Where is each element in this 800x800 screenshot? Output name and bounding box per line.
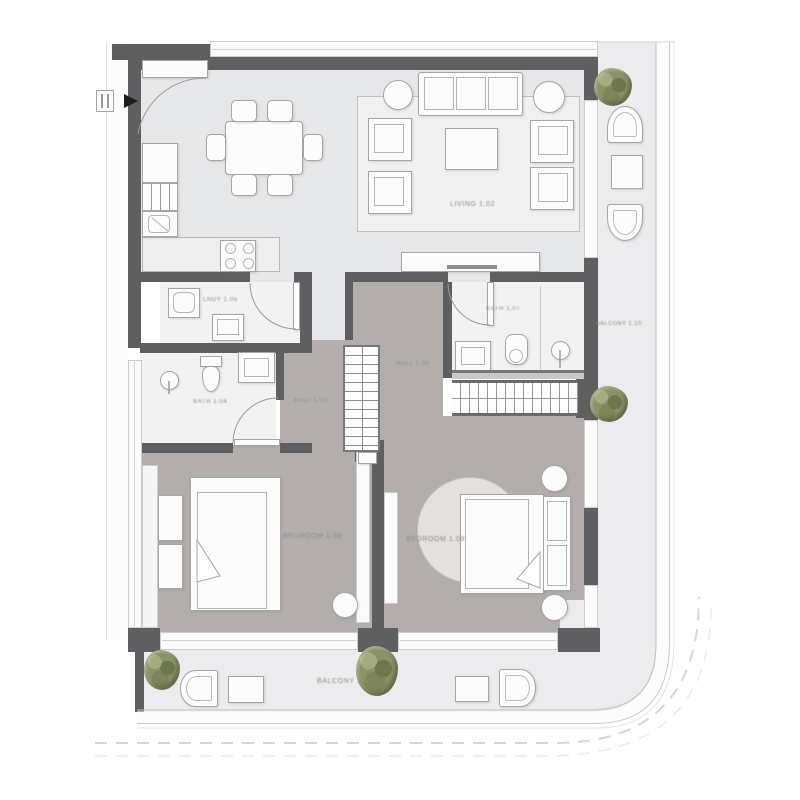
- sofa-cushion-2: [456, 77, 486, 110]
- sofa-cushion-3: [488, 77, 518, 110]
- bath-main-counter-edge: [452, 370, 584, 373]
- wall-bedroom-partition: [372, 440, 384, 632]
- dining-table: [225, 121, 303, 175]
- armchair-1-cushion: [374, 124, 404, 153]
- sliding-door-bedroom2: [384, 492, 398, 604]
- window-bottom-1-line: [162, 640, 356, 641]
- wall-bath-main-left: [443, 282, 452, 378]
- window-bottom-1: [160, 632, 358, 650]
- refrigerator: [142, 143, 178, 183]
- wall-living-hall-b: [490, 272, 598, 282]
- kitchen-sink-basin: [148, 215, 170, 233]
- wall-bedroom1-top-a: [137, 443, 233, 453]
- side-table-left: [383, 80, 413, 110]
- window-sill-bedroom1: [142, 465, 158, 628]
- exterior-wall-face: [106, 42, 128, 640]
- entry-cabinet: [142, 60, 208, 78]
- shower-main: [551, 341, 570, 360]
- tv-console: [401, 252, 540, 272]
- window-left-line: [134, 362, 135, 626]
- room-label-bedroom-2: BEDROOM 1.09: [406, 536, 465, 543]
- nightstand-1b: [158, 544, 183, 589]
- lounge-chair-front-1: [180, 670, 218, 707]
- kitchen-counter: [142, 237, 280, 272]
- patio-table-front-1: [228, 676, 264, 703]
- closet-shelves-foot: [358, 452, 377, 464]
- patio-table-front-2: [455, 676, 489, 702]
- window-bottom-2: [398, 632, 558, 650]
- dining-chair-4: [267, 174, 293, 196]
- bed-2-pillow-b: [547, 545, 567, 586]
- wardrobe-rail: [452, 398, 578, 399]
- wall-laundry-bath: [140, 343, 310, 353]
- nightstand-2a: [541, 465, 568, 492]
- washer-drum: [173, 292, 195, 313]
- wall-bottom-c: [558, 628, 600, 652]
- dining-chair-6: [303, 134, 323, 161]
- entry-marker: [96, 90, 114, 112]
- sofa-cushion-1: [424, 77, 454, 110]
- room-label-bath-main: BATH 1.07: [486, 306, 520, 312]
- bed-2-mattress: [465, 499, 529, 589]
- coffee-table: [445, 128, 498, 170]
- armchair-4-cushion: [538, 173, 568, 202]
- wall-hall-left: [345, 282, 353, 340]
- bath-main-divider: [540, 286, 541, 370]
- armchair-3-cushion: [538, 126, 568, 155]
- wall-terrace-left: [135, 648, 144, 712]
- wall-bottom-a: [128, 628, 160, 652]
- room-label-bedroom-1: BEDROOM 1.08: [283, 533, 342, 540]
- room-label-hall: HALL 1.06: [396, 361, 430, 367]
- wall-laundry-corridor: [300, 273, 312, 353]
- dining-chair-2: [267, 100, 293, 122]
- wardrobe: [452, 380, 578, 416]
- room-label-balcony-side: BALCONY 1.10: [596, 321, 642, 327]
- closet-shelves: [343, 345, 380, 452]
- burner-4: [243, 258, 254, 269]
- wall-entry-top: [112, 44, 212, 60]
- lounge-chair-side-1: [607, 106, 643, 143]
- bed-1-mattress: [197, 492, 267, 609]
- armchair-2-cushion: [374, 177, 404, 206]
- dining-chair-3: [231, 174, 257, 196]
- window-top-line: [212, 49, 596, 50]
- window-right-top: [584, 100, 598, 258]
- room-label-balcony-front: BALCONY 1.11: [317, 678, 373, 685]
- dining-chair-1: [231, 100, 257, 122]
- door-leaf-laundry: [293, 282, 300, 330]
- room-label-bath-ensuite: BATH 1.04: [193, 399, 227, 405]
- wall-bath-ensuite-right: [276, 352, 284, 400]
- window-right-mid: [584, 420, 598, 508]
- room-label-corridor: HALL 1.03: [294, 398, 328, 404]
- bed-2-pillow-a: [547, 501, 567, 541]
- wall-left: [128, 57, 141, 348]
- toilet-main-seat: [509, 349, 523, 363]
- patio-table-side: [611, 155, 643, 189]
- burner-3: [225, 258, 236, 269]
- nightstand-2b: [541, 594, 568, 621]
- door-leaf-bath-ensuite: [234, 439, 280, 446]
- wall-bedroom1-top-b: [280, 443, 312, 453]
- tv: [447, 265, 497, 269]
- window-left-band: [128, 360, 142, 628]
- wall-living-hall-a: [345, 272, 448, 282]
- lounge-chair-front-2: [499, 669, 536, 707]
- entry-marker-bar-1: [101, 94, 103, 108]
- laundry-sink-basin: [217, 319, 239, 335]
- entry-marker-bar-2: [107, 94, 109, 108]
- kitchen-appliance: [142, 183, 178, 211]
- door-leaf-bath-main: [487, 282, 494, 326]
- sliding-door-bedroom1: [356, 447, 370, 623]
- sink-ensuite-basin: [244, 358, 269, 377]
- room-label-living: LIVING 1.02: [450, 201, 495, 208]
- side-table-right: [533, 81, 565, 113]
- nightstand-1a: [158, 495, 183, 541]
- burner-1: [225, 243, 236, 254]
- shower-ensuite: [160, 371, 179, 390]
- room-label-laundry: LNDY 1.05: [203, 297, 238, 303]
- wall-kitchen-laundry-a: [140, 272, 250, 282]
- sink-main-basin: [461, 347, 485, 365]
- closet-shelves-divider: [362, 347, 363, 450]
- dining-chair-5: [206, 134, 226, 161]
- wall-right-c: [584, 508, 598, 585]
- bath-main-counter: [452, 373, 584, 379]
- window-bottom-2-line: [400, 640, 556, 641]
- window-right-low: [584, 585, 598, 628]
- stool: [332, 592, 358, 618]
- burner-2: [243, 243, 254, 254]
- floor-plan: LIVING 1.02 LNDY 1.05 BATH 1.07 HALL 1.0…: [0, 0, 800, 800]
